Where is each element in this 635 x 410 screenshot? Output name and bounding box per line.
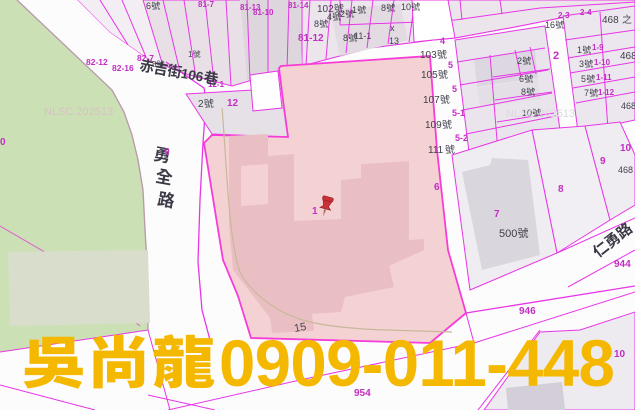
svg-text:944: 944: [614, 259, 631, 270]
svg-text:3: 3: [579, 59, 584, 69]
svg-text:13: 13: [389, 36, 399, 46]
svg-text:81-7: 81-7: [198, 0, 215, 9]
svg-text:4: 4: [327, 12, 332, 22]
svg-text:111: 111: [428, 145, 444, 156]
svg-text:1: 1: [352, 5, 357, 15]
svg-text:946: 946: [519, 306, 536, 317]
svg-text:10: 10: [620, 143, 632, 154]
svg-text:7: 7: [494, 209, 500, 220]
svg-text:1-12: 1-12: [598, 88, 615, 97]
svg-text:2: 2: [553, 50, 559, 62]
svg-text:1: 1: [577, 45, 582, 55]
svg-text:8: 8: [343, 33, 348, 43]
svg-text:8: 8: [152, 60, 157, 69]
svg-text:1: 1: [188, 50, 193, 59]
svg-text:10: 10: [401, 2, 411, 12]
svg-text:8: 8: [381, 3, 386, 13]
svg-text:1: 1: [312, 206, 318, 217]
svg-text:10: 10: [614, 349, 626, 360]
svg-text:82-16: 82-16: [112, 63, 134, 73]
svg-text:5-1: 5-1: [452, 108, 465, 118]
svg-text:6: 6: [146, 1, 151, 11]
svg-text:81-14: 81-14: [288, 1, 309, 10]
svg-text:2: 2: [340, 9, 345, 19]
svg-text:82-12: 82-12: [86, 57, 108, 67]
svg-text:109: 109: [425, 120, 442, 131]
svg-text:468: 468: [620, 51, 635, 62]
svg-text:7: 7: [584, 88, 589, 98]
svg-text:468: 468: [621, 101, 635, 111]
svg-text:5: 5: [581, 74, 586, 84]
svg-text:1-10: 1-10: [594, 58, 611, 67]
svg-text:468: 468: [602, 15, 619, 26]
svg-text:11-1: 11-1: [354, 31, 371, 41]
svg-text:105: 105: [421, 70, 438, 81]
svg-text:9: 9: [600, 156, 606, 167]
svg-text:0909-011-448: 0909-011-448: [219, 327, 614, 400]
svg-text:5-2: 5-2: [455, 133, 468, 143]
svg-text:6: 6: [519, 74, 524, 84]
svg-text:NLSC 202513: NLSC 202513: [44, 106, 113, 118]
svg-text:2: 2: [517, 56, 522, 66]
svg-text:5: 5: [452, 84, 457, 94]
svg-text:500: 500: [499, 228, 517, 240]
svg-text:16: 16: [545, 20, 555, 30]
svg-text:9: 9: [164, 147, 170, 158]
svg-text:8: 8: [314, 19, 319, 29]
svg-text:1-9: 1-9: [592, 43, 604, 52]
svg-text:x: x: [390, 23, 395, 33]
svg-text:81-12: 81-12: [298, 33, 324, 44]
svg-text:107: 107: [423, 95, 440, 106]
svg-text:12: 12: [227, 98, 239, 109]
svg-text:468: 468: [618, 165, 633, 175]
svg-text:6: 6: [434, 182, 440, 193]
svg-text:4: 4: [440, 36, 445, 46]
svg-text:2-3: 2-3: [558, 11, 570, 20]
svg-text:NLSC 202513: NLSC 202513: [506, 108, 575, 120]
svg-text:8: 8: [521, 87, 526, 97]
svg-text:81-13: 81-13: [240, 3, 261, 12]
svg-text:0: 0: [0, 137, 6, 148]
svg-text:103: 103: [420, 50, 437, 61]
svg-text:5: 5: [448, 60, 453, 70]
svg-text:8: 8: [558, 184, 564, 195]
svg-text:2-4: 2-4: [580, 8, 592, 17]
svg-text:2: 2: [198, 99, 204, 110]
svg-text:1-11: 1-11: [596, 73, 612, 82]
